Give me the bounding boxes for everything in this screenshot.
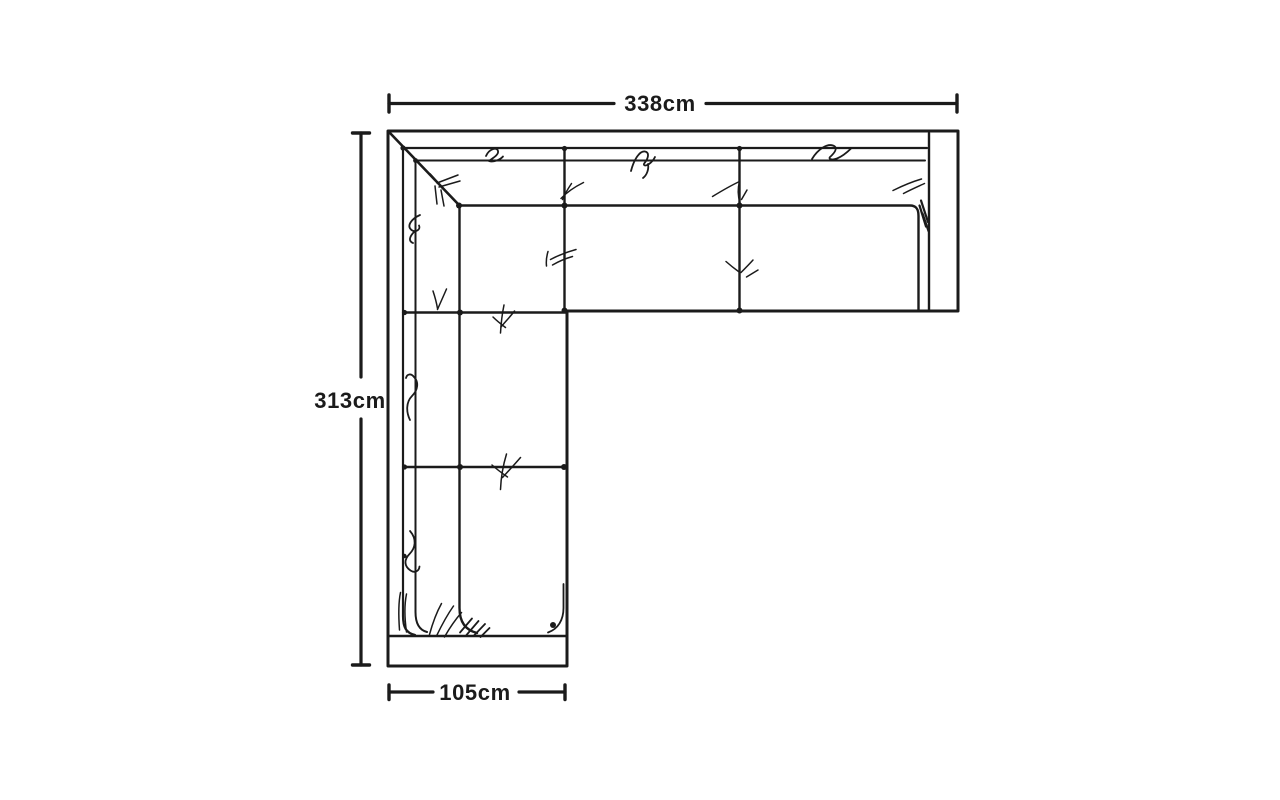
squiggle-marks [405, 145, 851, 572]
cushion-dividers [404, 149, 740, 468]
sofa-dimension-diagram: 338cm 313cm 105cm [0, 0, 1280, 800]
wrinkle-marks [399, 174, 925, 637]
left-dimension: 313cm [314, 133, 386, 665]
seam-dots [400, 145, 742, 628]
cushion-boundaries [389, 206, 919, 637]
sofa-outline [388, 131, 958, 666]
left-dimension-label: 313cm [314, 388, 386, 413]
backrest-frame [390, 133, 927, 635]
shading-hatches [460, 201, 929, 638]
bottom-dimension: 105cm [389, 680, 565, 705]
sofa-drawing [388, 131, 958, 666]
bottom-dimension-label: 105cm [439, 680, 511, 705]
top-dimension-label: 338cm [624, 91, 696, 116]
corner-sofa-plan-svg: 338cm 313cm 105cm [0, 0, 1280, 800]
top-dimension: 338cm [389, 91, 957, 116]
